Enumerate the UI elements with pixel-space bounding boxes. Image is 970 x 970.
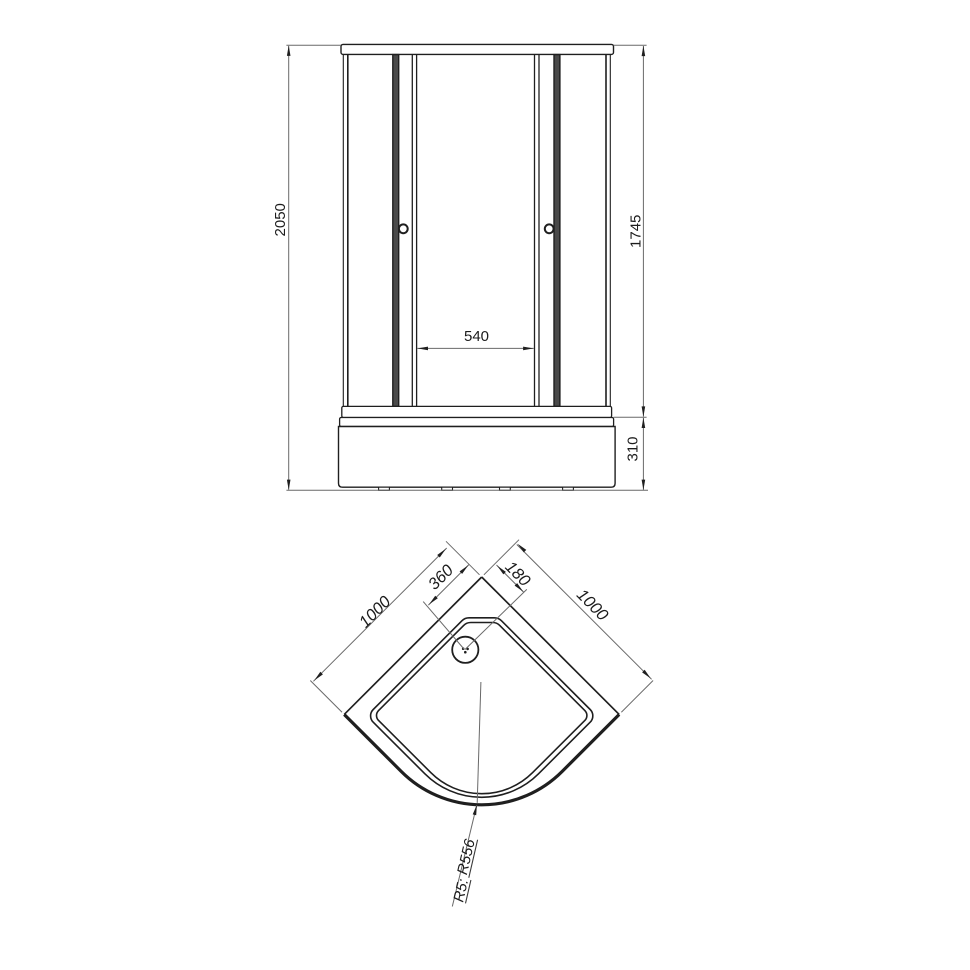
svg-text:1000: 1000: [573, 586, 612, 625]
svg-text:R556: R556: [454, 837, 479, 876]
svg-text:1745: 1745: [628, 215, 645, 248]
svg-text:1000: 1000: [356, 592, 395, 631]
svg-text:180: 180: [501, 558, 534, 591]
svg-text:540: 540: [464, 328, 489, 345]
svg-text:360: 360: [425, 561, 458, 594]
svg-text:2050: 2050: [272, 203, 289, 236]
svg-text:310: 310: [625, 436, 642, 461]
